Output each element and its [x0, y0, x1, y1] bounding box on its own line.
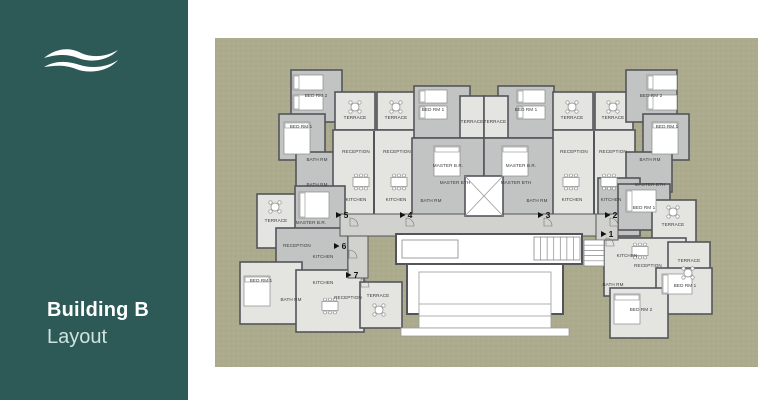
room-label: RECEPTION	[599, 149, 627, 154]
room-block	[484, 96, 508, 138]
chair	[393, 174, 396, 177]
entrance-apron	[401, 328, 569, 336]
chair	[269, 210, 272, 213]
bed-pillow	[503, 147, 527, 152]
bed-pillow	[420, 91, 425, 102]
lobby-room	[402, 240, 458, 258]
room-label: MASTER BTH	[440, 180, 471, 185]
room-label: MASTER BTH	[635, 182, 666, 187]
chair	[349, 101, 352, 104]
room-block	[460, 96, 484, 138]
bed-pillow	[663, 275, 668, 293]
chair	[565, 174, 568, 177]
chair	[324, 311, 327, 314]
chair	[566, 101, 569, 104]
chair	[403, 174, 406, 177]
chair	[398, 174, 401, 177]
chair	[639, 256, 642, 259]
chair	[676, 206, 679, 209]
page-subtitle: Layout	[47, 324, 149, 350]
room-label: BATH RM	[306, 182, 327, 187]
room-label: BED RM 1	[656, 124, 679, 129]
unit-number-marker: 3	[546, 210, 551, 220]
chair	[390, 101, 393, 104]
room-label: RECEPTION	[560, 149, 588, 154]
room-label: KITCHEN	[601, 197, 622, 202]
room-label: KITCHEN	[386, 197, 407, 202]
room-block	[360, 282, 402, 328]
room-label: TERRACE	[484, 119, 507, 124]
chair	[607, 110, 610, 113]
round-table	[568, 103, 576, 111]
room-label: BED RM 2	[305, 93, 328, 98]
chair	[613, 174, 616, 177]
unit-number-marker: 4	[408, 210, 413, 220]
room-label: TERRACE	[344, 115, 367, 120]
chair	[613, 187, 616, 190]
room-label: BATH RM	[280, 297, 301, 302]
bed-pillow	[294, 96, 299, 109]
room-label: MASTER B.R.	[296, 220, 326, 225]
chair	[676, 215, 679, 218]
round-table	[392, 103, 400, 111]
chair	[644, 256, 647, 259]
chair	[667, 206, 670, 209]
bed-pillow	[627, 191, 632, 211]
chair	[365, 174, 368, 177]
title-block: Building B Layout	[47, 297, 149, 350]
chair	[639, 243, 642, 246]
unit-number-marker: 2	[613, 210, 618, 220]
page-title: Building B	[47, 297, 149, 323]
chair	[329, 298, 332, 301]
room-label: KITCHEN	[313, 280, 334, 285]
chair	[324, 298, 327, 301]
chair	[644, 243, 647, 246]
room-label: BATH RM	[639, 157, 660, 162]
round-table	[669, 208, 677, 216]
room-label: BED RM 1	[515, 107, 538, 112]
unit-number-marker: 1	[609, 229, 614, 239]
chair	[570, 174, 573, 177]
dining-table	[563, 178, 579, 187]
room-label: BATH RM	[306, 157, 327, 162]
chair	[575, 101, 578, 104]
chair	[360, 174, 363, 177]
chair	[390, 110, 393, 113]
room-label: BED RM 1	[422, 107, 445, 112]
chair	[278, 210, 281, 213]
bed-pillow	[615, 295, 639, 300]
room-label: KITCHEN	[346, 197, 367, 202]
chair	[358, 110, 361, 113]
sidebar: Building B Layout	[0, 0, 188, 400]
unit-number-marker: 6	[342, 241, 347, 251]
room-label: BED RM 2	[630, 307, 653, 312]
room-label: RECEPTION	[383, 149, 411, 154]
chair	[269, 201, 272, 204]
chair	[608, 174, 611, 177]
room-label: TERRACE	[367, 293, 390, 298]
chair	[603, 174, 606, 177]
room-label: TERRACE	[561, 115, 584, 120]
chair	[566, 110, 569, 113]
dining-table	[391, 178, 407, 187]
room-label: BATH RM	[526, 198, 547, 203]
room-label: BED RM 1	[250, 278, 273, 283]
chair	[334, 311, 337, 314]
room-label: MASTER B.R.	[506, 163, 536, 168]
chair	[373, 304, 376, 307]
chair	[399, 110, 402, 113]
wave-icon-svg	[42, 46, 120, 76]
chair	[398, 187, 401, 190]
room-label: TERRACE	[461, 119, 484, 124]
bed-pillow	[294, 76, 299, 89]
room-label: BED RM 2	[640, 93, 663, 98]
bed-pillow	[518, 91, 523, 102]
chair	[608, 187, 611, 190]
chair	[358, 101, 361, 104]
chair	[616, 101, 619, 104]
round-table	[351, 103, 359, 111]
room-label: RECEPTION	[634, 263, 662, 268]
room-label: TERRACE	[385, 115, 408, 120]
chair	[382, 313, 385, 316]
room-label: BED RM 1	[674, 283, 697, 288]
chair	[603, 187, 606, 190]
chair	[382, 304, 385, 307]
room-label: BATH RM	[602, 282, 623, 287]
round-table	[375, 306, 383, 314]
chair	[355, 187, 358, 190]
room-label: BED RM 1	[290, 124, 313, 129]
chair	[399, 101, 402, 104]
round-table	[609, 103, 617, 111]
chair	[667, 215, 670, 218]
chair	[575, 110, 578, 113]
chair	[570, 187, 573, 190]
chair	[393, 187, 396, 190]
chair	[575, 174, 578, 177]
room-label: TERRACE	[678, 258, 701, 263]
chair	[565, 187, 568, 190]
staircase	[584, 240, 604, 266]
round-table	[271, 203, 279, 211]
chair	[373, 313, 376, 316]
dining-table	[322, 302, 338, 311]
wave-icon	[42, 46, 120, 76]
room-label: KITCHEN	[617, 253, 638, 258]
chair	[616, 110, 619, 113]
room-label: TERRACE	[602, 115, 625, 120]
chair	[329, 311, 332, 314]
chair	[403, 187, 406, 190]
room-label: TERRACE	[265, 218, 288, 223]
slide: BED RM 2BED RM 1BATH RMBATH RMTERRACETER…	[0, 0, 780, 400]
room-label: RECEPTION	[334, 295, 362, 300]
room-block	[340, 214, 608, 236]
chair	[360, 187, 363, 190]
room-label: RECEPTION	[342, 149, 370, 154]
unit-number-marker: 7	[354, 270, 359, 280]
round-table	[684, 269, 692, 277]
chair	[355, 174, 358, 177]
chair	[691, 276, 694, 279]
bed-pillow	[435, 147, 459, 152]
room-label: BED RM 1	[633, 205, 656, 210]
room-label: MASTER BTH	[501, 180, 532, 185]
bed-pillow	[648, 76, 653, 89]
entrance-canopy	[419, 272, 551, 328]
room-label: RECEPTION	[283, 243, 311, 248]
room-label: KITCHEN	[313, 254, 334, 259]
unit-number-marker: 5	[344, 210, 349, 220]
chair	[575, 187, 578, 190]
chair	[634, 243, 637, 246]
chair	[365, 187, 368, 190]
chair	[607, 101, 610, 104]
chair	[349, 110, 352, 113]
chair	[682, 267, 685, 270]
room-label: TERRACE	[662, 222, 685, 227]
room-label: BATH RM	[420, 198, 441, 203]
room-label: MASTER B.R.	[433, 163, 463, 168]
dining-table	[353, 178, 369, 187]
bed-pillow	[300, 193, 305, 217]
chair	[682, 276, 685, 279]
chair	[691, 267, 694, 270]
chair	[278, 201, 281, 204]
dining-table	[601, 178, 617, 187]
room-label: KITCHEN	[562, 197, 583, 202]
